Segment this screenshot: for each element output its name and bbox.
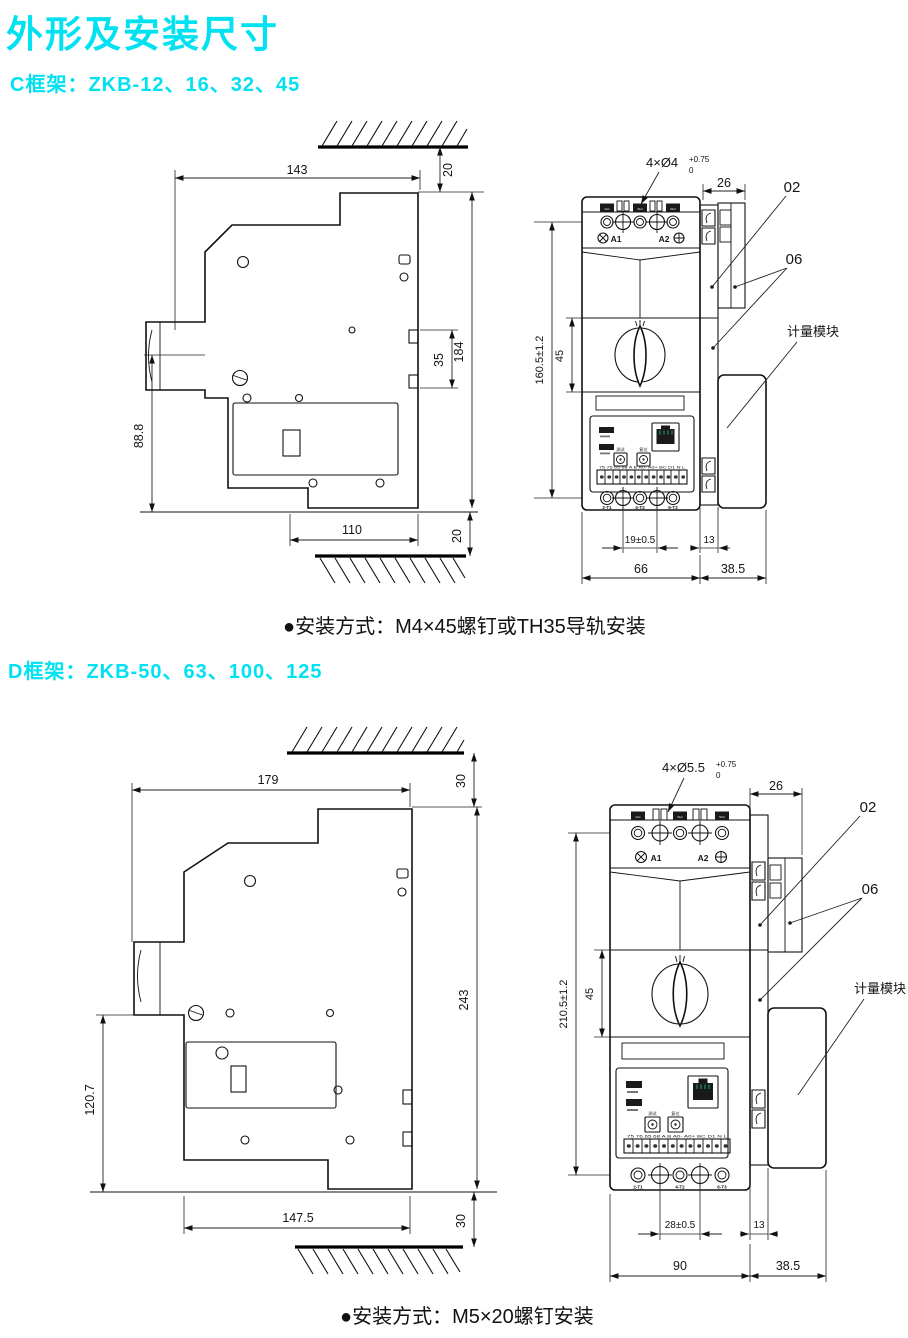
c-adapter-module <box>718 203 745 308</box>
d-label-a1: A1 <box>651 853 662 863</box>
dim-d-handle-height: 45 <box>584 988 596 1000</box>
c-bot-terminal-label-3: 6-T3 <box>668 505 678 510</box>
c-usb-slot-1 <box>599 427 614 433</box>
dim-d-height-total: 243 <box>457 990 471 1011</box>
dim-d-gap-top: 30 <box>454 774 468 788</box>
dim-c-height-front: 88.8 <box>132 424 146 448</box>
d-part-02-label: 02 <box>860 799 877 816</box>
d-frame-side-view-drawing: 179 30 243 120.7 147.5 30 <box>80 700 510 1300</box>
c-frame-side-view-drawing: 143 20 184 35 88.8 110 20 <box>130 110 500 610</box>
dim-c-depth: 26 <box>717 176 731 190</box>
d-hole-tol-up: +0.75 <box>716 760 737 769</box>
d-bot-terminal-label-3: 6-T3 <box>717 1185 727 1190</box>
d-frame-front-view-drawing: 1/L1 3/L2 5/L3 A1 A2 <box>555 740 908 1300</box>
dim-d-width-bottom: 147.5 <box>282 1211 313 1225</box>
d-side-body <box>134 809 412 1189</box>
dim-d-mount-height: 210.5±1.2 <box>558 980 570 1029</box>
d-reset-button-label: 复位 <box>671 1110 679 1117</box>
section-c-heading: C框架：ZKB-12、16、32、45 <box>10 68 300 97</box>
c-hole-tol-up: +0.75 <box>689 155 710 164</box>
dim-c-height-total: 184 <box>452 342 466 363</box>
dim-d-depth: 26 <box>769 779 783 793</box>
section-d-heading: D框架：ZKB-50、63、100、125 <box>8 655 322 684</box>
c-side-flange <box>700 205 718 505</box>
d-usb-slot-2 <box>626 1099 642 1106</box>
c-top-terminal-label-1: 1/L1 <box>604 207 610 211</box>
d-mounting-note: ●安装方式：M5×20螺钉安装 <box>340 1300 594 1329</box>
dim-d-flange-width: 13 <box>753 1220 765 1231</box>
dim-d-gap-bottom: 30 <box>454 1214 468 1228</box>
d-usb-slot-1 <box>626 1081 642 1088</box>
d-metering-label: 计量模块 <box>854 981 906 996</box>
dim-c-flange-width: 13 <box>703 535 715 546</box>
c-bot-terminal-label-1: 2-T1 <box>602 505 612 510</box>
d-bot-terminal-label-1: 2-T1 <box>633 1185 643 1190</box>
c-side-body <box>146 193 418 508</box>
dim-c-pitch: 19±0.5 <box>625 535 656 546</box>
c-hole-callout: 4×Ø4 <box>646 155 678 170</box>
c-side-wall-bottom <box>315 556 466 583</box>
c-top-terminal-label-2: 3/L2 <box>637 207 643 211</box>
c-label-a2: A2 <box>659 234 670 244</box>
dim-c-gap-bottom: 20 <box>450 529 464 543</box>
d-hole-tol-dn: 0 <box>716 771 721 780</box>
dim-c-meter-width: 38.5 <box>721 562 745 576</box>
c-terminal-strip-labels: 75 76 65 68 A B A0- A0+ BC D1 N L <box>599 466 685 470</box>
d-metering-module <box>768 1008 826 1168</box>
d-top-terminal-label-3: 5/L3 <box>719 815 725 819</box>
c-top-terminal-label-3: 5/L3 <box>670 207 676 211</box>
datasheet-page: 外形及安装尺寸 C框架：ZKB-12、16、32、45 <box>0 0 908 1338</box>
c-side-wall-top <box>318 121 468 147</box>
d-side-wall-bottom <box>295 1247 463 1274</box>
d-top-terminal-label-2: 3/L2 <box>677 815 683 819</box>
d-test-button-label: 测试 <box>648 1110 657 1117</box>
dim-d-width-top: 179 <box>258 773 279 787</box>
d-hole-callout: 4×Ø5.5 <box>662 760 705 775</box>
c-test-button-label: 测试 <box>616 446 625 453</box>
c-metering-label: 计量模块 <box>787 324 839 339</box>
c-label-a1: A1 <box>611 234 622 244</box>
page-title: 外形及安装尺寸 <box>6 4 279 58</box>
dim-c-mount-height: 160.5±1.2 <box>534 336 546 385</box>
c-part-06-label: 06 <box>786 251 803 268</box>
d-top-terminal-label-1: 1/L1 <box>635 815 641 819</box>
dim-d-pitch: 28±0.5 <box>665 1220 696 1231</box>
c-mounting-note: ●安装方式：M4×45螺钉或TH35导轨安装 <box>283 610 646 639</box>
d-adapter-module <box>768 858 802 952</box>
dim-c-width-bottom: 110 <box>342 523 362 537</box>
c-frame-front-view-drawing: 1/L1 3/L2 5/L3 A1 A2 <box>520 128 908 600</box>
c-usb-slot-2 <box>599 444 614 450</box>
d-label-a2: A2 <box>698 853 709 863</box>
c-reset-button-label: 复位 <box>639 446 647 453</box>
d-part-06-label: 06 <box>862 881 879 898</box>
c-metering-module <box>718 375 766 508</box>
dim-c-body-width: 66 <box>634 562 648 576</box>
d-terminal-strip-labels: 75 76 65 68 A B A0- A0+ BC D1 N L <box>627 1135 727 1139</box>
dim-d-meter-width: 38.5 <box>776 1259 800 1273</box>
dim-d-body-width: 90 <box>673 1259 687 1273</box>
dim-c-width-top: 143 <box>287 163 308 177</box>
d-side-wall-top <box>287 727 464 753</box>
c-bot-terminal-label-2: 4-T2 <box>635 505 645 510</box>
dim-d-height-front: 120.7 <box>83 1084 97 1115</box>
d-bot-terminal-label-2: 4-T2 <box>675 1185 685 1190</box>
dim-c-gap-top: 20 <box>441 163 455 177</box>
d-front-body: 1/L1 3/L2 5/L3 A1 A2 <box>610 805 768 1190</box>
dim-c-handle-height: 45 <box>554 350 566 362</box>
c-part-02-label: 02 <box>784 179 801 196</box>
c-hole-tol-dn: 0 <box>689 166 694 175</box>
dim-c-rail-height: 35 <box>432 353 446 367</box>
d-side-flange <box>750 815 768 1165</box>
c-front-body: 1/L1 3/L2 5/L3 A1 A2 <box>582 197 718 510</box>
